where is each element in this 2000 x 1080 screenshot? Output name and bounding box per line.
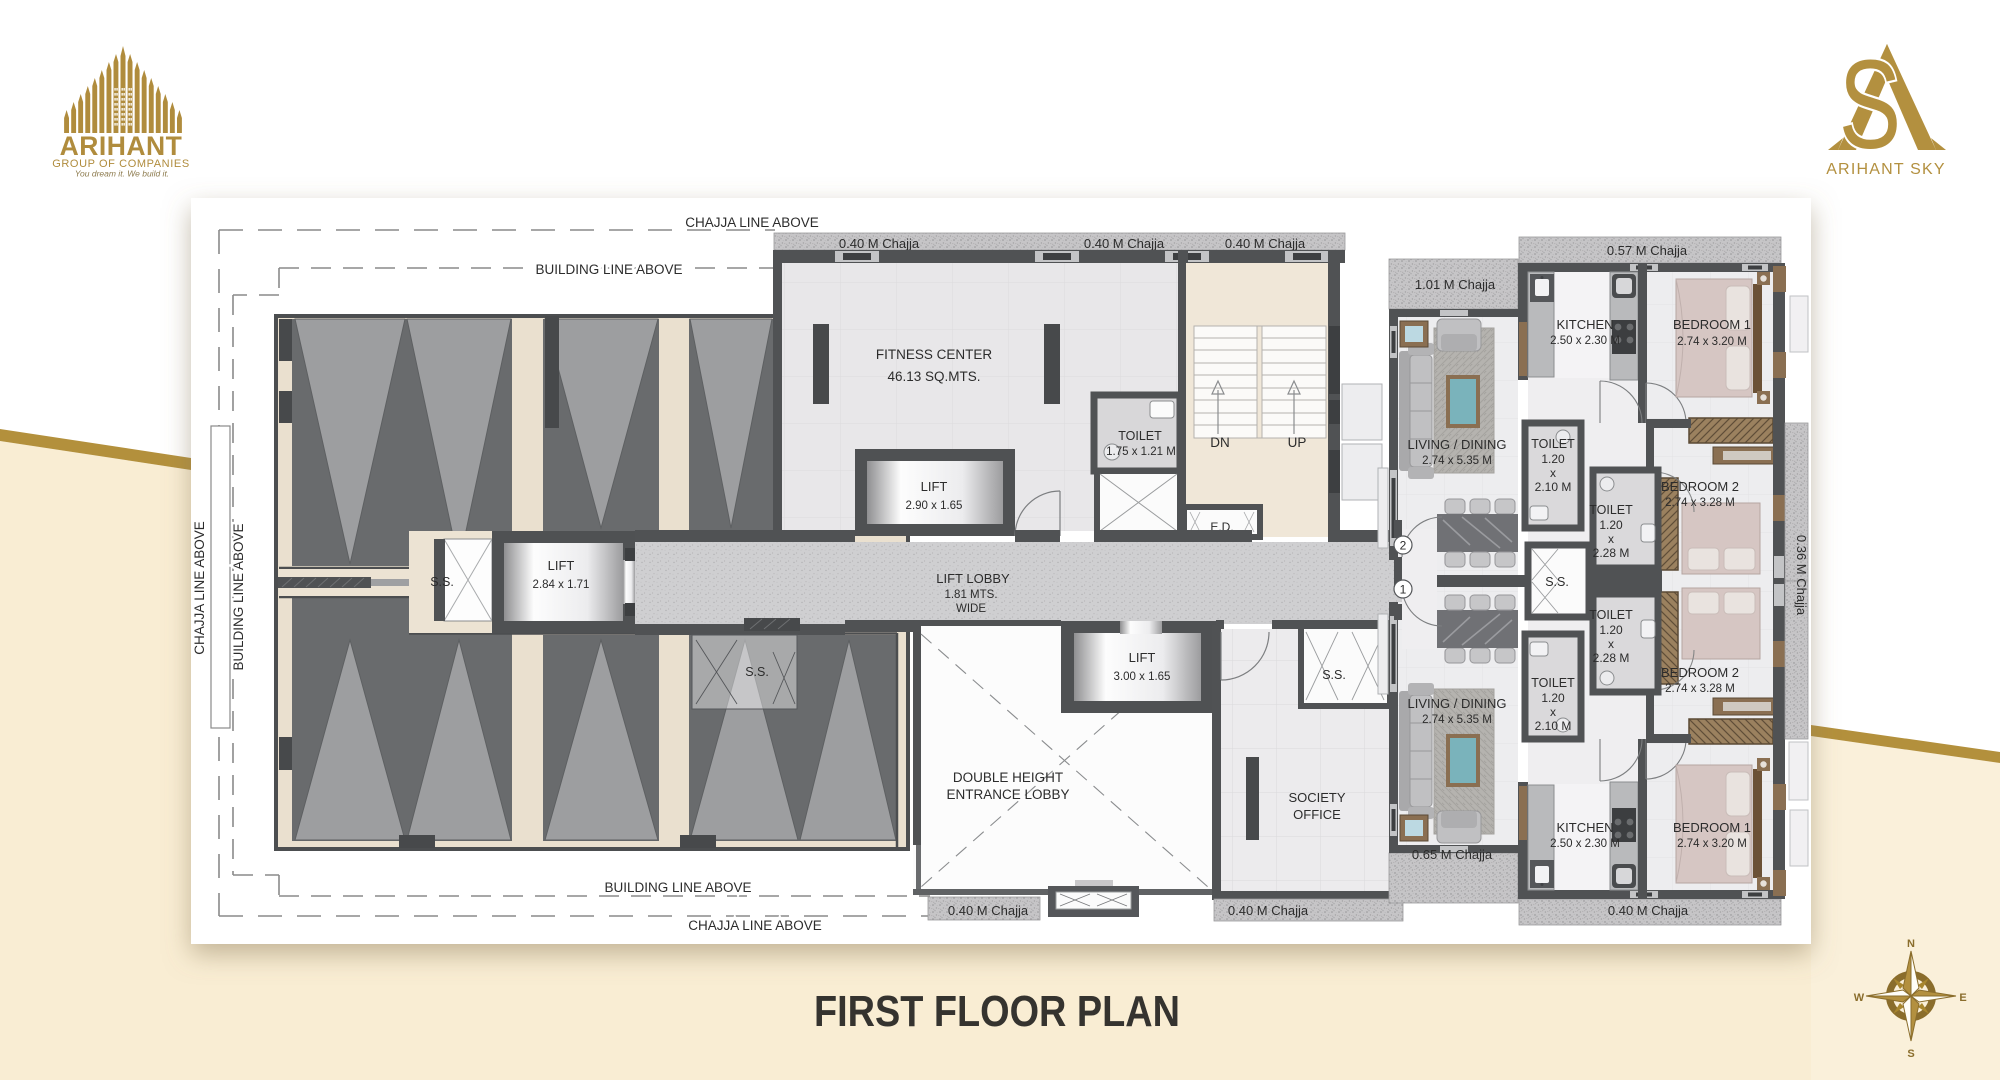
svg-text:S: S — [1907, 1048, 1914, 1060]
svg-text:FIRST FLOOR PLAN: FIRST FLOOR PLAN — [814, 987, 1180, 1036]
svg-text:S.S.: S.S. — [745, 665, 769, 679]
svg-text:2.50 x 2.30 M: 2.50 x 2.30 M — [1550, 335, 1620, 347]
svg-text:CHAJJA LINE ABOVE: CHAJJA LINE ABOVE — [192, 521, 207, 655]
svg-text:TOILET: TOILET — [1531, 437, 1575, 451]
svg-text:x: x — [1550, 466, 1556, 480]
svg-text:2.74 x 3.20 M: 2.74 x 3.20 M — [1677, 838, 1747, 850]
svg-text:2.28 M: 2.28 M — [1593, 651, 1630, 665]
svg-text:DOUBLE HEIGHT: DOUBLE HEIGHT — [953, 770, 1063, 785]
svg-text:1.01 M Chajja: 1.01 M Chajja — [1415, 277, 1496, 292]
svg-text:0.57 M Chajja: 0.57 M Chajja — [1607, 243, 1688, 258]
svg-text:2.74 x 3.28 M: 2.74 x 3.28 M — [1665, 683, 1735, 695]
svg-text:BUILDING LINE ABOVE: BUILDING LINE ABOVE — [535, 262, 682, 277]
svg-text:E: E — [1959, 992, 1966, 1004]
svg-text:DN: DN — [1210, 435, 1230, 450]
svg-text:FITNESS CENTER: FITNESS CENTER — [876, 347, 993, 362]
svg-text:TOILET: TOILET — [1531, 676, 1575, 690]
svg-text:x: x — [1608, 637, 1614, 651]
svg-text:46.13 SQ.MTS.: 46.13 SQ.MTS. — [887, 369, 980, 384]
svg-text:BUILDING LINE ABOVE: BUILDING LINE ABOVE — [604, 880, 751, 895]
svg-text:BEDROOM 1: BEDROOM 1 — [1673, 317, 1751, 332]
svg-text:BEDROOM 2: BEDROOM 2 — [1661, 479, 1739, 494]
svg-text:2: 2 — [1400, 539, 1407, 553]
svg-text:OFFICE: OFFICE — [1293, 807, 1341, 822]
svg-text:SOCIETY: SOCIETY — [1288, 790, 1345, 805]
svg-text:0.40 M Chajja: 0.40 M Chajja — [1225, 236, 1306, 251]
svg-text:2.10 M: 2.10 M — [1535, 719, 1572, 733]
svg-text:LIFT: LIFT — [548, 558, 575, 573]
svg-text:S.S.: S.S. — [1322, 668, 1346, 682]
svg-text:2.50 x 2.30 M: 2.50 x 2.30 M — [1550, 838, 1620, 850]
svg-text:3.00 x 1.65: 3.00 x 1.65 — [1114, 671, 1171, 683]
svg-text:2.74 x 3.20 M: 2.74 x 3.20 M — [1677, 336, 1747, 348]
svg-text:ENTRANCE LOBBY: ENTRANCE LOBBY — [946, 787, 1069, 802]
svg-text:2.84 x 1.71: 2.84 x 1.71 — [533, 579, 590, 591]
svg-text:ARIHANT SKY: ARIHANT SKY — [1826, 161, 1946, 178]
svg-text:KITCHEN: KITCHEN — [1556, 317, 1613, 332]
svg-text:S.S.: S.S. — [430, 575, 454, 589]
svg-text:1.75 x 1.21 M: 1.75 x 1.21 M — [1106, 446, 1176, 458]
svg-text:UP: UP — [1288, 435, 1307, 450]
svg-text:0.36 M Chajja: 0.36 M Chajja — [1794, 535, 1809, 616]
svg-text:2.90 x 1.65: 2.90 x 1.65 — [906, 500, 963, 512]
svg-text:CHAJJA LINE ABOVE: CHAJJA LINE ABOVE — [688, 918, 822, 933]
svg-text:BUILDING LINE ABOVE: BUILDING LINE ABOVE — [231, 523, 246, 670]
svg-text:CHAJJA LINE ABOVE: CHAJJA LINE ABOVE — [685, 215, 819, 230]
svg-text:LIFT: LIFT — [921, 479, 948, 494]
svg-text:1: 1 — [1400, 583, 1407, 597]
svg-text:W: W — [1854, 992, 1865, 1004]
svg-text:You dream it. We build it.: You dream it. We build it. — [75, 169, 169, 179]
svg-text:1.20: 1.20 — [1541, 691, 1565, 705]
svg-text:1.20: 1.20 — [1541, 452, 1565, 466]
svg-text:x: x — [1550, 705, 1556, 719]
svg-text:0.40 M Chajja: 0.40 M Chajja — [1228, 903, 1309, 918]
svg-text:1.81 MTS.: 1.81 MTS. — [944, 589, 997, 601]
svg-text:2.74 x 5.35 M: 2.74 x 5.35 M — [1422, 714, 1492, 726]
svg-text:LIFT LOBBY: LIFT LOBBY — [936, 571, 1010, 586]
svg-text:0.40 M Chajja: 0.40 M Chajja — [948, 903, 1029, 918]
svg-text:0.40 M Chajja: 0.40 M Chajja — [1084, 236, 1165, 251]
svg-text:LIFT: LIFT — [1129, 650, 1156, 665]
svg-text:TOILET: TOILET — [1118, 429, 1162, 443]
svg-text:LIVING / DINING: LIVING / DINING — [1408, 437, 1507, 452]
svg-text:2.28 M: 2.28 M — [1593, 546, 1630, 560]
svg-text:2.74 x 5.35 M: 2.74 x 5.35 M — [1422, 455, 1492, 467]
svg-text:2.10 M: 2.10 M — [1535, 480, 1572, 494]
svg-text:0.65 M Chajja: 0.65 M Chajja — [1412, 847, 1493, 862]
svg-text:S.S.: S.S. — [1545, 575, 1569, 589]
svg-text:1.20: 1.20 — [1599, 518, 1623, 532]
svg-text:1.20: 1.20 — [1599, 623, 1623, 637]
svg-text:0.40 M Chajja: 0.40 M Chajja — [1608, 903, 1689, 918]
svg-text:2.74 x 3.28 M: 2.74 x 3.28 M — [1665, 497, 1735, 509]
svg-text:0.40 M Chajja: 0.40 M Chajja — [839, 236, 920, 251]
svg-text:BEDROOM 2: BEDROOM 2 — [1661, 665, 1739, 680]
svg-text:ARIHANT: ARIHANT — [60, 131, 183, 161]
svg-text:KITCHEN: KITCHEN — [1556, 820, 1613, 835]
svg-text:N: N — [1907, 938, 1915, 950]
svg-text:BEDROOM 1: BEDROOM 1 — [1673, 820, 1751, 835]
svg-text:LIVING / DINING: LIVING / DINING — [1408, 696, 1507, 711]
svg-text:x: x — [1608, 532, 1614, 546]
svg-text:WIDE: WIDE — [956, 603, 986, 615]
svg-text:S: S — [1839, 35, 1901, 175]
svg-text:TOILET: TOILET — [1589, 608, 1633, 622]
svg-text:TOILET: TOILET — [1589, 503, 1633, 517]
